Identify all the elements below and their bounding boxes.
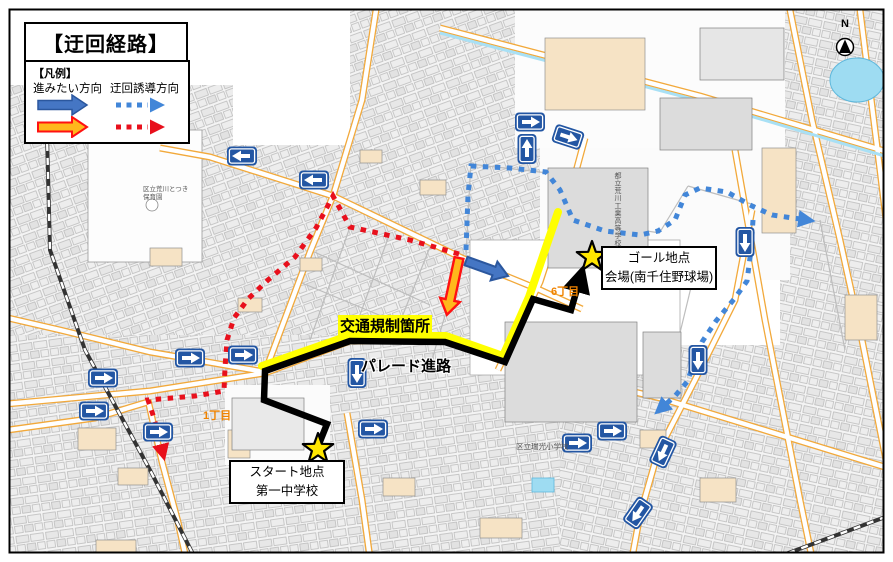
one-way-sign-icon [736,227,755,257]
legend: 【凡例】 進みたい方向 迂回誘導方向 [24,60,190,144]
district-6-label: 6丁目 [551,283,579,299]
north-label: N [836,18,854,30]
parade-route-label: パレード進路 [361,355,451,376]
nursery-label: 区立荒川とつき保育園 [143,186,191,203]
one-way-sign-icon [518,134,537,164]
one-way-sign-icon [597,422,627,441]
district-1-label: 1丁目 [203,407,231,423]
one-way-sign-icon [358,420,388,439]
legend-blue-dotted-arrow-icon [112,94,174,116]
one-way-sign-icon [143,423,173,442]
map-title-text: 【迂回経路】 [43,28,169,57]
one-way-sign-icon [689,345,708,375]
goal-line1: ゴール地点 [628,249,691,268]
traffic-control-label: 交通規制箇所 [338,315,432,336]
detour-map: 【迂回経路】 【凡例】 進みたい方向 迂回誘導方向 交通規制箇所 パレード進路 … [0,0,893,562]
one-way-sign-icon [299,171,329,190]
map-title: 【迂回経路】 [24,22,188,62]
elementary-school-label: 区立瑞光小学校 [516,441,569,452]
legend-heading: 【凡例】 [33,65,77,81]
legend-orange-solid-arrow-icon [34,116,96,138]
legend-red-dotted-arrow-icon [112,116,174,138]
one-way-sign-icon [515,113,545,132]
one-way-sign-icon [79,402,109,421]
start-line1: スタート地点 [249,463,324,482]
tech-school-label: 都立荒川工業高等学校 [612,172,622,264]
north-compass-icon [837,39,854,56]
start-label-box: スタート地点 第一中学校 [229,460,345,504]
one-way-sign-icon [175,349,205,368]
one-way-sign-icon [228,346,258,365]
goal-line2: 会場(南千住野球場) [605,268,713,287]
legend-blue-solid-arrow-icon [34,94,96,116]
one-way-sign-icon [227,147,257,166]
start-line2: 第一中学校 [256,482,319,501]
one-way-sign-icon [88,369,118,388]
